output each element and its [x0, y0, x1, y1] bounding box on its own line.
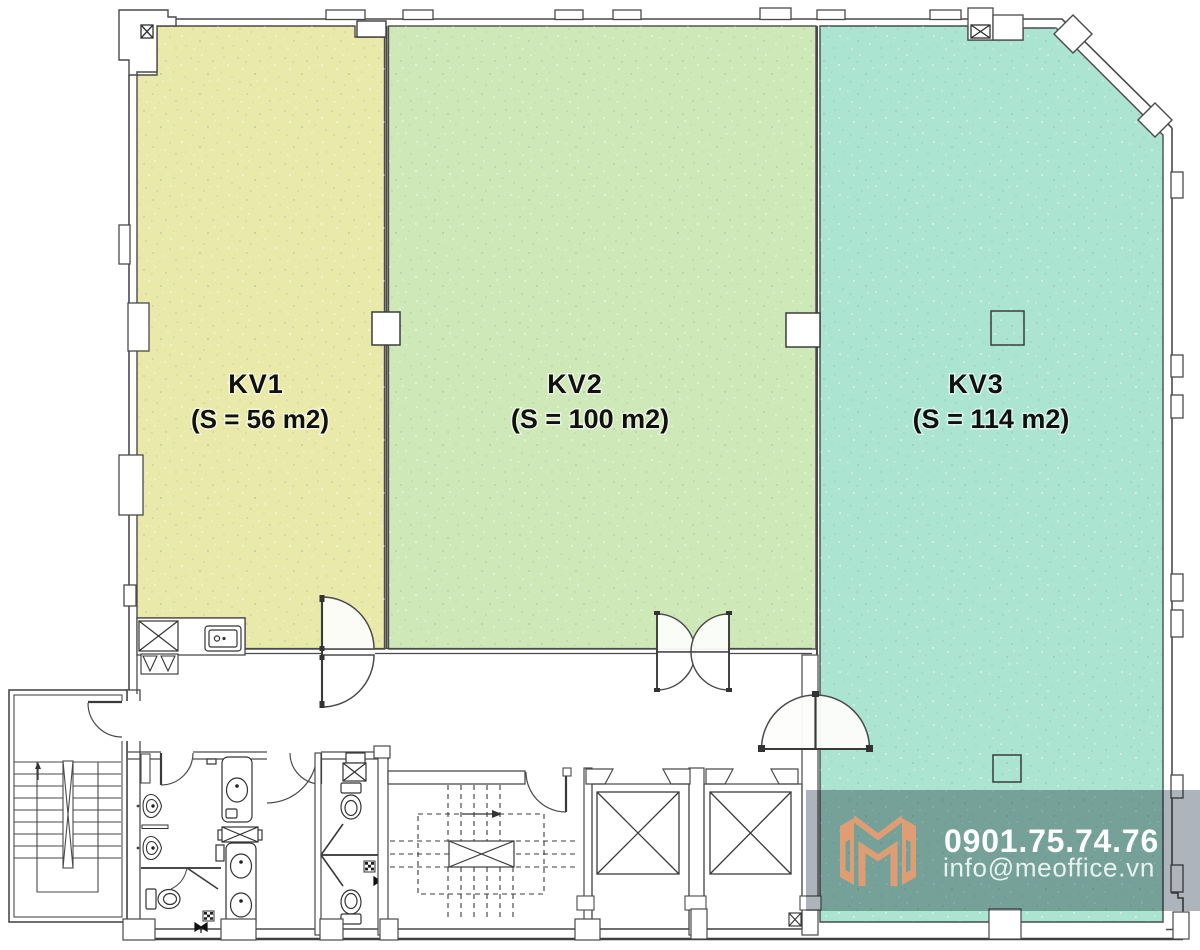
svg-text:KV3: KV3 — [948, 369, 1004, 399]
svg-text:(S = 100 m2): (S = 100 m2) — [511, 404, 669, 434]
svg-text:info@meoffice.vn: info@meoffice.vn — [943, 853, 1155, 883]
svg-text:(S = 56 m2): (S = 56 m2) — [191, 404, 329, 434]
svg-text:KV1: KV1 — [228, 369, 284, 399]
svg-text:(S = 114 m2): (S = 114 m2) — [913, 404, 1070, 434]
svg-text:KV2: KV2 — [547, 369, 603, 399]
